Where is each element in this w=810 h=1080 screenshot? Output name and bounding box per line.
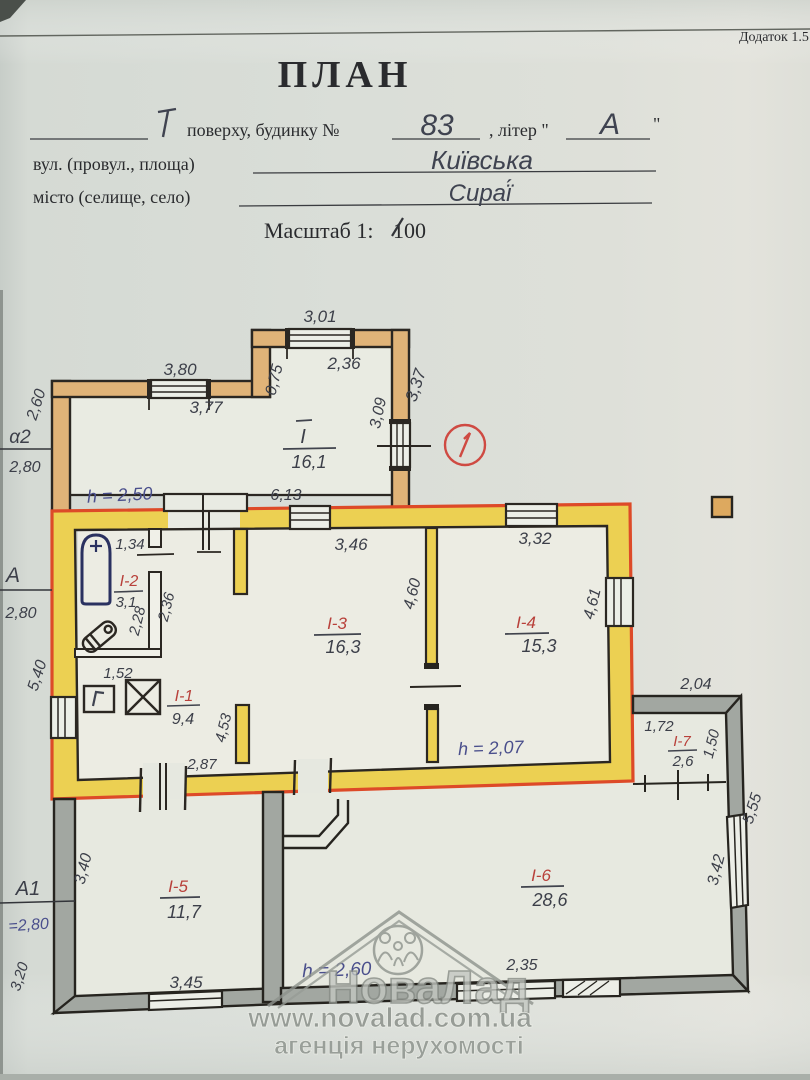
- svg-text:І-7: І-7: [673, 733, 691, 750]
- svg-text:А1: А1: [15, 878, 40, 900]
- svg-text:3,01: 3,01: [303, 307, 336, 326]
- svg-text:": ": [653, 114, 660, 134]
- svg-text:ПЛАН: ПЛАН: [278, 54, 413, 96]
- svg-text:www.novalad.com.ua: www.novalad.com.ua: [247, 1002, 532, 1033]
- svg-text:вул. (провул., площа): вул. (провул., площа): [33, 154, 195, 175]
- svg-text:6,13: 6,13: [270, 487, 301, 504]
- svg-text:2,80: 2,80: [4, 605, 36, 622]
- svg-text:І: І: [300, 426, 306, 448]
- svg-text:поверху, будинку №: поверху, будинку №: [187, 120, 339, 140]
- svg-text:І-3: І-3: [327, 614, 347, 633]
- svg-text:І-5: І-5: [168, 877, 188, 896]
- svg-text:16,1: 16,1: [291, 452, 326, 472]
- svg-text:А: А: [598, 108, 620, 141]
- svg-text:=2,80: =2,80: [8, 916, 50, 936]
- svg-text:І-2: І-2: [120, 573, 139, 590]
- svg-text:І-1: І-1: [175, 688, 194, 705]
- svg-text:15,3: 15,3: [521, 636, 556, 656]
- svg-text:1,52: 1,52: [103, 665, 133, 682]
- svg-text:А: А: [4, 564, 20, 587]
- svg-text:h = 2,50: h = 2,50: [86, 483, 153, 506]
- svg-text:, літер ": , літер ": [489, 120, 549, 140]
- svg-text:місто (селище, село): місто (селище, село): [33, 187, 190, 208]
- svg-text:агенція нерухомості: агенція нерухомості: [274, 1032, 524, 1060]
- svg-text:І-4: І-4: [516, 613, 536, 632]
- svg-text:h = 2,07: h = 2,07: [458, 737, 525, 759]
- svg-text:16,3: 16,3: [325, 637, 360, 657]
- svg-text:3,80: 3,80: [163, 360, 197, 379]
- svg-text:2,6: 2,6: [672, 753, 695, 770]
- svg-text:І-6: І-6: [531, 866, 551, 885]
- svg-text:3,77: 3,77: [189, 398, 223, 417]
- svg-text:2,80: 2,80: [8, 459, 40, 476]
- svg-text:1,72: 1,72: [644, 718, 674, 735]
- svg-text:100: 100: [393, 218, 426, 243]
- svg-text:Додаток 1.5: Додаток 1.5: [739, 30, 809, 45]
- svg-text:1,34: 1,34: [115, 536, 144, 553]
- svg-text:2,87: 2,87: [186, 756, 217, 773]
- svg-text:α2: α2: [9, 427, 31, 448]
- svg-text:3,45: 3,45: [169, 973, 203, 992]
- svg-text:11,7: 11,7: [167, 902, 202, 922]
- svg-text:3,46: 3,46: [334, 535, 368, 554]
- svg-text:2,36: 2,36: [326, 354, 361, 373]
- svg-text:28,6: 28,6: [531, 890, 568, 910]
- svg-text:3,32: 3,32: [518, 529, 552, 548]
- svg-text:2,04: 2,04: [679, 676, 711, 693]
- svg-text:Масштаб 1:: Масштаб 1:: [264, 218, 373, 243]
- svg-text:Київська: Київська: [431, 145, 533, 175]
- svg-text:9,4: 9,4: [172, 711, 194, 728]
- svg-text:83: 83: [420, 109, 454, 142]
- svg-text:Сираї́: Сираї́: [449, 179, 514, 207]
